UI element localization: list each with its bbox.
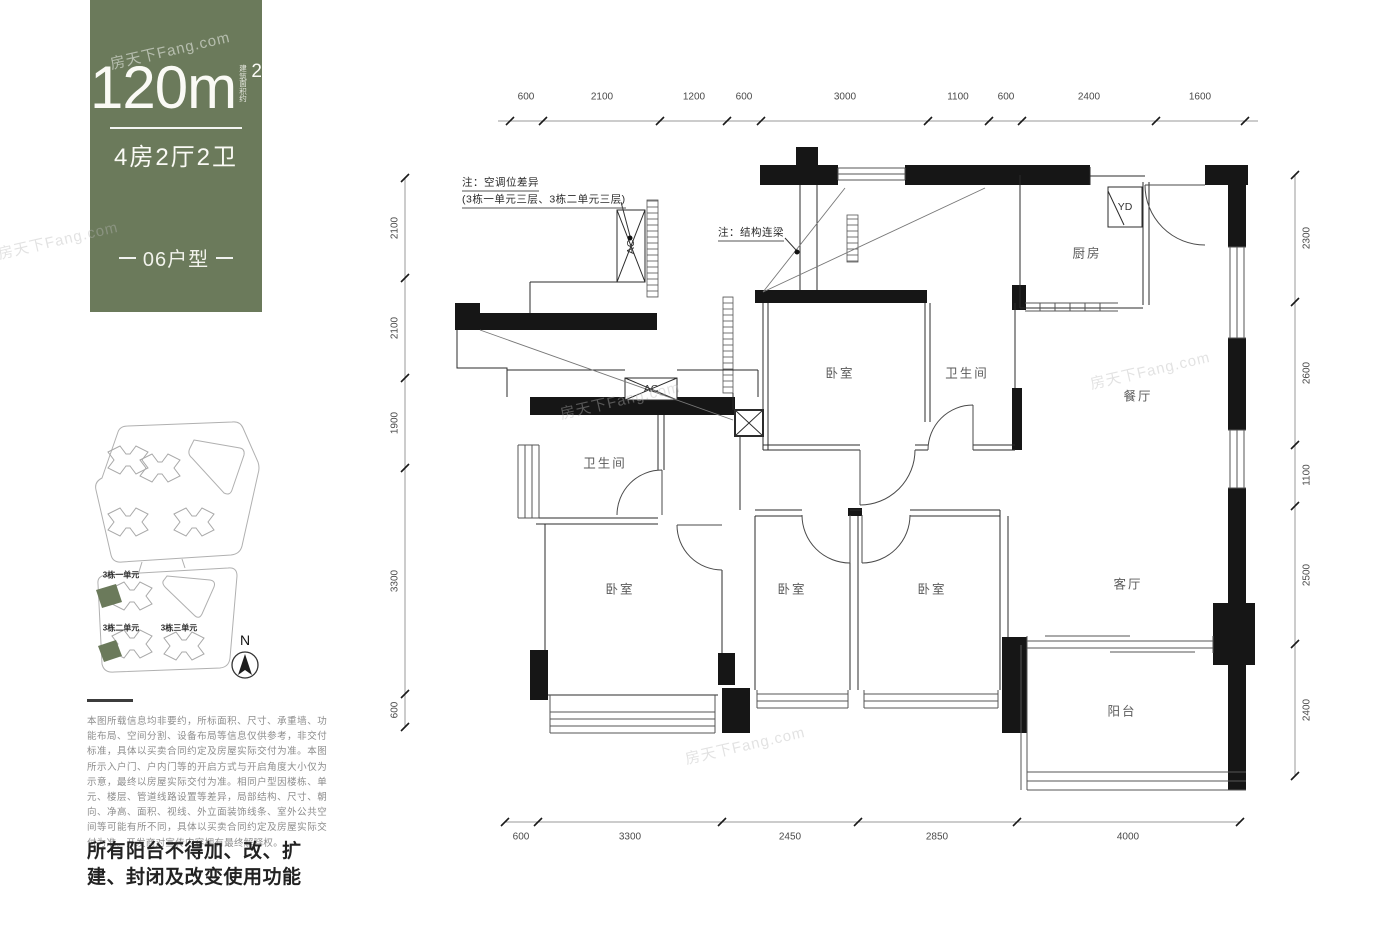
dim-top-2400: 2400 bbox=[1078, 92, 1100, 103]
area-superscript: 2 bbox=[251, 62, 262, 81]
area-note: 建筑面积约 bbox=[236, 65, 250, 103]
dim-bottom-4000: 4000 bbox=[1117, 832, 1139, 843]
dim-left-600: 600 bbox=[390, 702, 401, 719]
site-unit-2: 3栋二单元 bbox=[103, 623, 139, 634]
room-bedroom-3: 卧室 bbox=[777, 579, 806, 598]
divider-line bbox=[87, 699, 133, 702]
layout-label: 4房2厅2卫 bbox=[90, 137, 262, 172]
room-balcony: 阳台 bbox=[1107, 701, 1136, 720]
north-arrow bbox=[232, 652, 258, 678]
site-unit-3: 3栋三单元 bbox=[161, 623, 197, 634]
floorplan-page: 120m 建筑面积约 2 4房2厅2卫 06户型 bbox=[0, 0, 1400, 944]
dim-left-2100b: 2100 bbox=[390, 317, 401, 339]
dim-top-1200: 1200 bbox=[683, 92, 705, 103]
dim-top-2100: 2100 bbox=[591, 92, 613, 103]
dim-right-2500: 2500 bbox=[1302, 564, 1313, 586]
site-wedge-lower bbox=[163, 576, 215, 617]
site-parcel-upper bbox=[96, 422, 259, 562]
note-beam: 注：结构连梁 bbox=[718, 225, 784, 242]
site-unit-1: 3栋一单元 bbox=[103, 570, 139, 581]
unit-type-text: 06户型 bbox=[143, 243, 209, 272]
dim-right-1100: 1100 bbox=[1302, 464, 1313, 486]
room-bedroom-4: 卧室 bbox=[917, 579, 946, 598]
room-kitchen: 厨房 bbox=[1072, 243, 1101, 262]
site-wedge-upper bbox=[189, 440, 244, 494]
site-building bbox=[140, 454, 180, 482]
dim-left-3300: 3300 bbox=[390, 570, 401, 592]
site-building bbox=[108, 508, 148, 536]
room-bathroom-2: 卫生间 bbox=[583, 453, 627, 472]
dim-top-600a: 600 bbox=[518, 92, 535, 103]
room-bedroom-2: 卧室 bbox=[605, 579, 634, 598]
panel-divider-line bbox=[110, 127, 242, 129]
dim-left-1900: 1900 bbox=[390, 412, 401, 434]
dim-top-3000: 3000 bbox=[834, 92, 856, 103]
dim-bottom-2450: 2450 bbox=[779, 832, 801, 843]
north-label: N bbox=[240, 632, 250, 648]
dim-left-2100a: 2100 bbox=[390, 217, 401, 239]
dim-top-600c: 600 bbox=[998, 92, 1015, 103]
dim-top-1600: 1600 bbox=[1189, 92, 1211, 103]
site-building-unit3 bbox=[164, 632, 204, 660]
dim-bottom-600: 600 bbox=[513, 832, 530, 843]
unit-type-label: 06户型 bbox=[90, 243, 262, 272]
site-plan bbox=[82, 418, 292, 690]
walls-thin bbox=[457, 167, 1149, 695]
balcony-notice: 所有阳台不得加、改、扩建、封闭及改变使用功能 bbox=[87, 839, 339, 890]
site-highlight-unit1 bbox=[96, 584, 122, 608]
room-dining: 餐厅 bbox=[1123, 386, 1152, 405]
site-building bbox=[108, 446, 148, 474]
room-bedroom-1: 卧室 bbox=[825, 363, 854, 382]
equip-yd: YD bbox=[1118, 201, 1133, 213]
room-bathroom-1: 卫生间 bbox=[945, 363, 989, 382]
disclaimer-text: 本图所载信息均非要约，所标面积、尺寸、承重墙、功能布局、空间分割、设备布局等信息… bbox=[87, 714, 327, 851]
dim-right-2600: 2600 bbox=[1302, 362, 1313, 384]
dim-bottom-3300: 3300 bbox=[619, 832, 641, 843]
equip-ac-1: AC bbox=[625, 240, 637, 255]
site-building bbox=[174, 508, 214, 536]
dim-bottom-2850: 2850 bbox=[926, 832, 948, 843]
dim-right-2300: 2300 bbox=[1302, 227, 1313, 249]
note-ac-line1: 注：空调位差异 bbox=[462, 175, 539, 192]
dim-right-2400: 2400 bbox=[1302, 699, 1313, 721]
dim-top-1100: 1100 bbox=[947, 92, 969, 103]
dim-top-600b: 600 bbox=[736, 92, 753, 103]
room-living: 客厅 bbox=[1113, 574, 1142, 593]
note-ac-line2: (3栋一单元三层、3栋二单元三层) bbox=[462, 192, 626, 209]
